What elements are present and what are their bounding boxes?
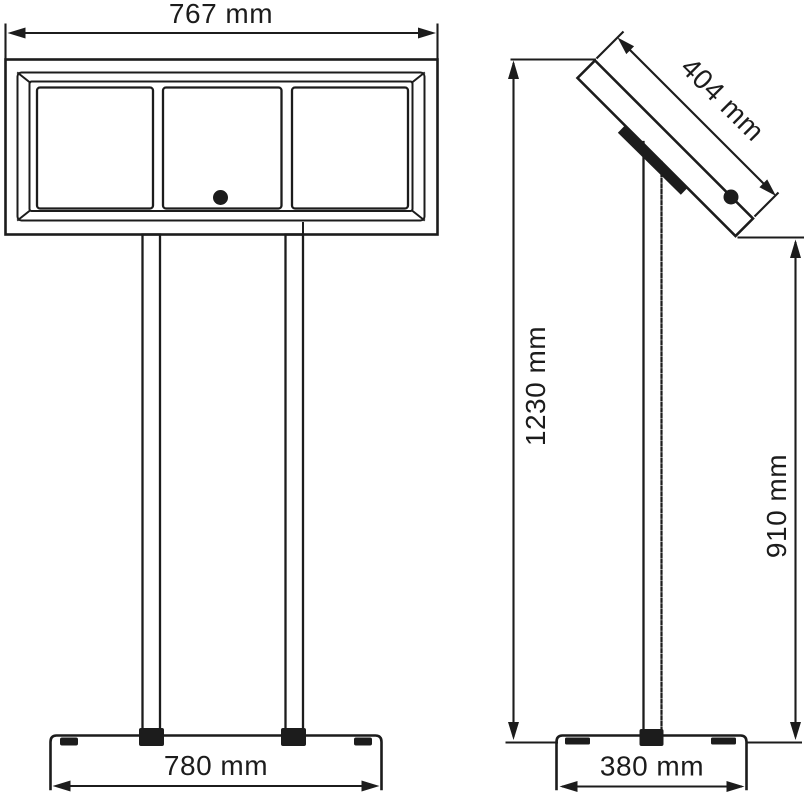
arrowhead-left (560, 781, 578, 792)
dimension-total-height: 1230 mm (506, 60, 597, 743)
dimension-front-base-width: 780 mm (53, 750, 380, 792)
frame-mitre-bottom-left (18, 211, 30, 221)
front-view: 767 mm (6, 0, 438, 792)
leg-right (286, 235, 304, 736)
dimension-label-front-width: 767 mm (169, 0, 273, 29)
foot-right (354, 738, 372, 746)
dimension-drawing: 767 mm (0, 0, 805, 794)
extension-line-top (597, 32, 624, 59)
arrowhead-right (362, 781, 380, 792)
leg-left-base-connector (139, 728, 164, 746)
front-stand (51, 223, 382, 789)
stand-pole (644, 142, 662, 736)
foot-left (60, 738, 78, 746)
leg-right-base-connector (281, 728, 306, 746)
arrowhead-down (508, 722, 519, 740)
notice-board-cabinet (6, 60, 438, 235)
arrowhead-left (8, 28, 26, 39)
dimension-label-pole-height: 910 mm (761, 454, 792, 558)
dimension-label-front-base-width: 780 mm (164, 750, 268, 781)
technical-drawing-page: 767 mm (0, 0, 805, 794)
arrowhead-down (790, 722, 801, 740)
dimension-label-panel-length: 404 mm (675, 51, 771, 147)
door-panel-right (292, 88, 408, 209)
arrowhead-up (790, 240, 801, 259)
arrowhead-right (418, 28, 436, 39)
lock-icon-side (724, 190, 739, 205)
dimension-label-side-base-depth: 380 mm (600, 751, 704, 782)
dimension-front-width: 767 mm (6, 0, 438, 60)
arrowhead-left (53, 781, 71, 792)
frame-mitre-top-right (412, 73, 424, 83)
leg-left (143, 235, 161, 736)
foot-back (711, 738, 736, 745)
pole-base-connector (640, 729, 664, 746)
door-panel-left (37, 88, 153, 209)
dimension-label-total-height: 1230 mm (520, 326, 551, 446)
extension-line-bottom (755, 193, 779, 217)
arrowhead-up (508, 61, 519, 80)
side-view: 1230 mm 404 mm (506, 32, 805, 793)
lock-icon (213, 190, 228, 205)
frame-mitre-top-left (18, 73, 30, 83)
frame-mitre-bottom-right (412, 211, 424, 221)
arrowhead-right (727, 781, 745, 792)
dimension-side-base-depth: 380 mm (560, 751, 745, 793)
dimension-pole-height: 910 mm (738, 238, 805, 743)
foot-front (565, 738, 590, 745)
